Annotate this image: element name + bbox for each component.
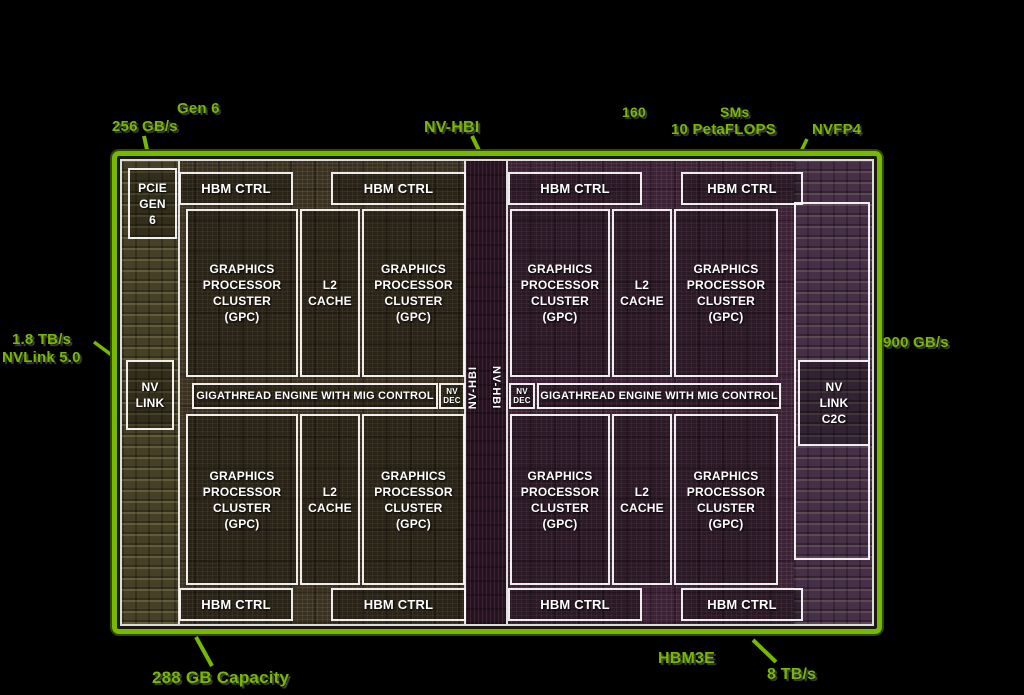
label-hbm-bandwidth: 8 TB/s	[767, 666, 816, 684]
label-pcie-gen: Gen 6	[177, 100, 220, 117]
l2-cache-block: L2 CACHE	[300, 414, 360, 585]
label-nvlink-bandwidth: 1.8 TB/s	[12, 331, 71, 348]
gpc-block: GRAPHICS PROCESSOR CLUSTER (GPC)	[362, 209, 465, 377]
gpc-block: GRAPHICS PROCESSOR CLUSTER (GPC)	[510, 209, 610, 377]
label-nvfp4: NVFP4	[812, 121, 861, 138]
die-photo: PCIE GEN 6 HBM CTRL HBM CTRL HBM CTRL HB…	[120, 159, 874, 626]
hbm-ctrl-block: HBM CTRL	[508, 588, 642, 621]
hbm-ctrl-block: HBM CTRL	[681, 172, 803, 205]
die-shot-figure: PCIE GEN 6 HBM CTRL HBM CTRL HBM CTRL HB…	[0, 0, 1024, 695]
label-nv-hbi: NV-HBI	[424, 119, 479, 137]
gpc-block: GRAPHICS PROCESSOR CLUSTER (GPC)	[510, 414, 610, 585]
pcie-gen6-block: PCIE GEN 6	[128, 168, 177, 239]
pointer-capacity	[196, 637, 212, 666]
label-sm-count: 160 SMs	[622, 104, 749, 120]
hbm-ctrl-block: HBM CTRL	[179, 172, 293, 205]
label-hbm-type: HBM3E	[658, 650, 715, 668]
hbm-ctrl-block: HBM CTRL	[179, 588, 293, 621]
nvdec-block: NV DEC	[439, 383, 465, 409]
hbm-ctrl-block: HBM CTRL	[508, 172, 642, 205]
l2-cache-block: L2 CACHE	[612, 414, 672, 585]
label-pcie-bandwidth: 256 GB/s	[112, 118, 178, 135]
label-petaflops: 10 PetaFLOPS	[671, 121, 776, 138]
label-c2c-bandwidth: 900 GB/s	[883, 334, 949, 351]
nv-hbi-vertical-left: NV-HBI	[467, 366, 479, 409]
gpc-block: GRAPHICS PROCESSOR CLUSTER (GPC)	[186, 414, 298, 585]
gigathread-engine-block: GIGATHREAD ENGINE WITH MIG CONTROL	[192, 383, 438, 409]
nv-hbi-vertical-right: NV-HBI	[490, 366, 502, 409]
label-nvlink-gen: NVLink 5.0	[2, 349, 81, 366]
divider-line	[178, 161, 180, 624]
l2-cache-block: L2 CACHE	[300, 209, 360, 377]
nvdec-block: NV DEC	[509, 383, 535, 409]
gpc-block: GRAPHICS PROCESSOR CLUSTER (GPC)	[674, 414, 778, 585]
hbm-ctrl-block: HBM CTRL	[681, 588, 803, 621]
divider-line	[506, 161, 508, 624]
label-hbm-capacity: 288 GB Capacity	[152, 668, 289, 688]
gpc-block: GRAPHICS PROCESSOR CLUSTER (GPC)	[186, 209, 298, 377]
gpc-block: GRAPHICS PROCESSOR CLUSTER (GPC)	[674, 209, 778, 377]
gpu-die: PCIE GEN 6 HBM CTRL HBM CTRL HBM CTRL HB…	[112, 151, 882, 634]
hbm-ctrl-block: HBM CTRL	[331, 588, 466, 621]
l2-cache-block: L2 CACHE	[612, 209, 672, 377]
nvlink-c2c-block: NV LINK C2C	[798, 360, 870, 446]
pointer-hbm-bw	[753, 640, 776, 662]
nvlink-block: NV LINK	[126, 360, 174, 430]
hbm-ctrl-block: HBM CTRL	[331, 172, 466, 205]
gigathread-engine-block: GIGATHREAD ENGINE WITH MIG CONTROL	[537, 383, 781, 409]
gpc-block: GRAPHICS PROCESSOR CLUSTER (GPC)	[362, 414, 465, 585]
